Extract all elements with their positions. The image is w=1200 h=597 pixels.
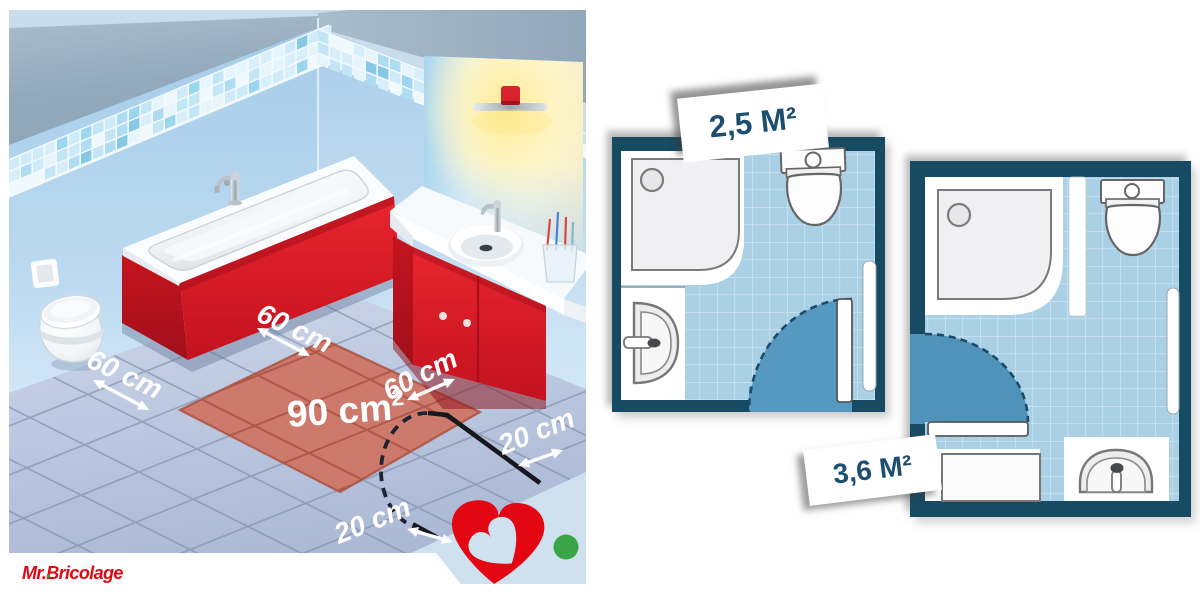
svg-text:Mr.Bricolage: Mr.Bricolage	[22, 563, 123, 583]
